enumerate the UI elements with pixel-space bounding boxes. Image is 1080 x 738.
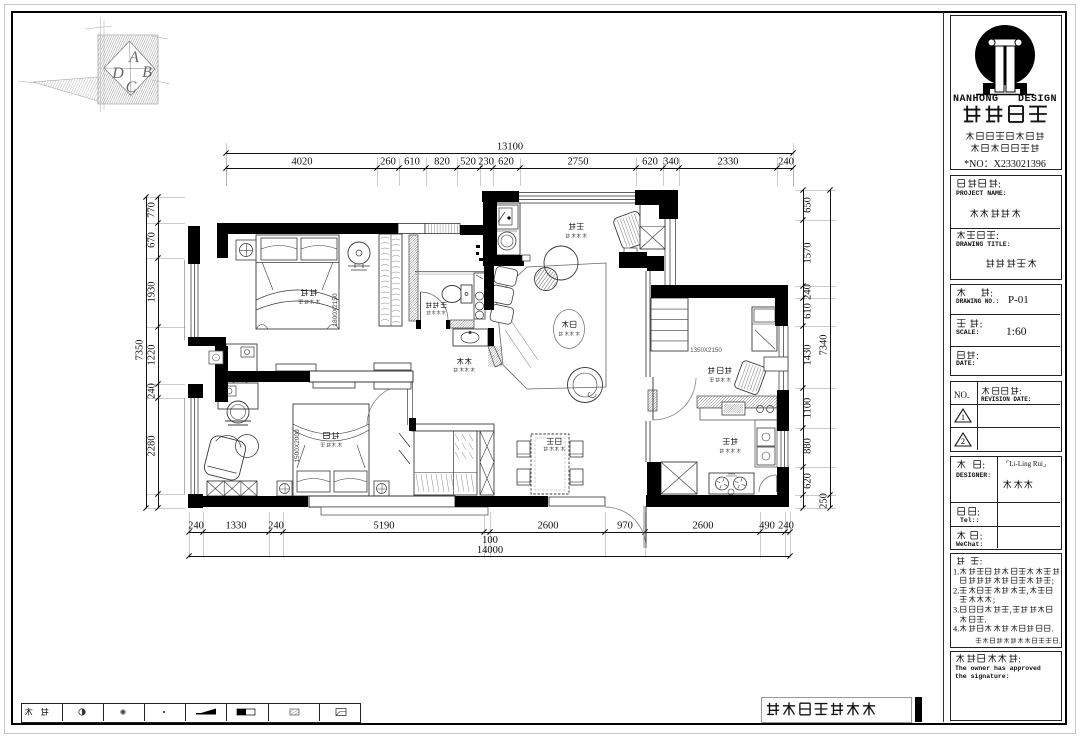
svg-text:A: A — [128, 49, 139, 66]
svg-text:230: 230 — [478, 157, 494, 168]
svg-text:620: 620 — [642, 157, 658, 168]
svg-text:620: 620 — [803, 473, 814, 489]
svg-text:2750: 2750 — [568, 157, 589, 168]
svg-text:240: 240 — [188, 521, 204, 532]
svg-text:650: 650 — [803, 197, 814, 213]
svg-text:520: 520 — [460, 157, 476, 168]
svg-text:820: 820 — [434, 157, 450, 168]
svg-text:7350: 7350 — [135, 340, 146, 361]
svg-text:240: 240 — [147, 383, 158, 399]
svg-text:1430: 1430 — [803, 345, 814, 366]
svg-text:C: C — [126, 79, 137, 96]
svg-text:2600: 2600 — [693, 521, 714, 532]
svg-text:1220: 1220 — [147, 345, 158, 366]
svg-text:4020: 4020 — [292, 157, 313, 168]
svg-text:340: 340 — [663, 157, 679, 168]
svg-text:970: 970 — [617, 521, 633, 532]
svg-text:240: 240 — [268, 521, 284, 532]
svg-text:14000: 14000 — [477, 545, 503, 556]
svg-text:610: 610 — [404, 157, 420, 168]
svg-text:880: 880 — [803, 438, 814, 454]
svg-text:260: 260 — [380, 157, 396, 168]
svg-text:1330: 1330 — [226, 521, 247, 532]
svg-text:D: D — [111, 65, 124, 82]
svg-text:2600: 2600 — [538, 521, 559, 532]
svg-text:2330: 2330 — [718, 157, 739, 168]
svg-text:250: 250 — [819, 493, 830, 509]
svg-text:B: B — [142, 64, 152, 81]
svg-text:1100: 1100 — [803, 398, 814, 419]
svg-text:620: 620 — [498, 157, 514, 168]
svg-text:670: 670 — [147, 232, 158, 248]
svg-text:240: 240 — [803, 284, 814, 300]
svg-text:1350X2150: 1350X2150 — [690, 347, 722, 354]
svg-text:1930: 1930 — [147, 282, 158, 303]
svg-text:490: 490 — [759, 521, 775, 532]
svg-text:1570: 1570 — [803, 243, 814, 264]
svg-text:610: 610 — [803, 303, 814, 319]
svg-text:240: 240 — [778, 521, 794, 532]
svg-text:240: 240 — [778, 157, 794, 168]
svg-text:2: 2 — [961, 437, 965, 446]
svg-text:1500X2000: 1500X2000 — [294, 429, 301, 463]
svg-text:13100: 13100 — [497, 142, 523, 153]
svg-text:5190: 5190 — [374, 521, 395, 532]
svg-text:770: 770 — [147, 202, 158, 218]
svg-text:1: 1 — [961, 413, 965, 422]
svg-text:2280: 2280 — [147, 436, 158, 457]
svg-text:1800X2150: 1800X2150 — [332, 293, 339, 327]
svg-text:7340: 7340 — [819, 335, 830, 356]
